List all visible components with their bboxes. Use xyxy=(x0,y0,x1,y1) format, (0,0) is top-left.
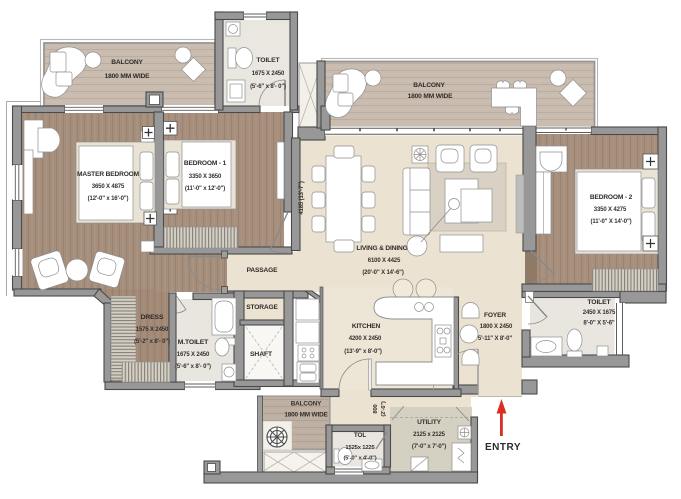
svg-text:1575 X 2450: 1575 X 2450 xyxy=(136,327,169,333)
svg-text:4200 X 2450: 4200 X 2450 xyxy=(349,336,382,342)
svg-text:BEDROOM - 2: BEDROOM - 2 xyxy=(590,194,633,201)
svg-text:(5'-6" x 8'- 0"): (5'-6" x 8'- 0") xyxy=(175,364,211,370)
svg-text:PASSAGE: PASSAGE xyxy=(247,267,278,274)
svg-text:(5'-6" x 8'- 0"): (5'-6" x 8'- 0") xyxy=(250,84,286,90)
svg-text:(13'-9" x 8'-0"): (13'-9" x 8'-0") xyxy=(344,349,382,355)
svg-text:DRESS: DRESS xyxy=(141,314,164,321)
svg-text:2125 x 2125: 2125 x 2125 xyxy=(413,432,446,438)
svg-text:1525x 1225: 1525x 1225 xyxy=(345,445,375,451)
svg-text:(11'-0" X 14'-0"): (11'-0" X 14'-0") xyxy=(590,219,631,225)
svg-text:1800 MM WIDE: 1800 MM WIDE xyxy=(105,73,150,80)
svg-text:SHAFT: SHAFT xyxy=(250,351,273,358)
svg-text:BALCONY: BALCONY xyxy=(111,59,143,66)
svg-text:(20'-0" X 14'-6"): (20'-0" X 14'-6") xyxy=(362,270,403,276)
svg-text:(12'-0" x 16'-0"): (12'-0" x 16'-0") xyxy=(88,196,129,202)
svg-text:3650 X 4875: 3650 X 4875 xyxy=(92,184,125,190)
svg-text:KITCHEN: KITCHEN xyxy=(352,323,381,330)
svg-text:(5'-2" x 8'- 0"): (5'-2" x 8'- 0") xyxy=(134,339,170,345)
svg-text:FOYER: FOYER xyxy=(484,312,506,319)
svg-text:STORAGE: STORAGE xyxy=(246,304,278,311)
svg-text:TOL: TOL xyxy=(354,432,366,439)
svg-text:BEDROOM - 1: BEDROOM - 1 xyxy=(184,160,227,167)
svg-text:(2'-6"): (2'-6") xyxy=(381,401,387,417)
svg-text:3350 X 3650: 3350 X 3650 xyxy=(189,174,222,180)
svg-text:800: 800 xyxy=(373,404,379,413)
svg-text:1800 MM WIDE: 1800 MM WIDE xyxy=(284,412,328,419)
svg-text:TOILET: TOILET xyxy=(587,299,611,306)
svg-text:(5'-0" x 4'-0"): (5'-0" x 4'-0") xyxy=(343,456,376,462)
svg-text:1800 X 2450: 1800 X 2450 xyxy=(480,324,513,330)
svg-text:1675 X 2450: 1675 X 2450 xyxy=(252,71,285,77)
svg-text:8'-0" X 5'-6": 8'-0" X 5'-6" xyxy=(583,321,615,327)
svg-text:UTILITY: UTILITY xyxy=(417,419,442,426)
svg-text:BALCONY: BALCONY xyxy=(413,82,445,89)
svg-text:BALCONY: BALCONY xyxy=(291,401,322,408)
svg-text:5'-11" X 8'-0": 5'-11" X 8'-0" xyxy=(478,336,512,342)
svg-text:TOILET: TOILET xyxy=(256,57,280,64)
svg-text:6100 X 4425: 6100 X 4425 xyxy=(368,258,401,264)
svg-text:M.TOILET: M.TOILET xyxy=(178,339,209,346)
svg-text:2450 X 1675: 2450 X 1675 xyxy=(583,310,616,316)
svg-text:(7'-0" x 7'-0"): (7'-0" x 7'-0") xyxy=(412,444,446,450)
svg-text:MASTER BEDROOM: MASTER BEDROOM xyxy=(77,171,140,178)
svg-text:LIVING & DINING: LIVING & DINING xyxy=(356,245,407,252)
svg-text:(11'-0" x 12'-0"): (11'-0" x 12'-0") xyxy=(185,186,225,192)
svg-text:3350 X 4275: 3350 X 4275 xyxy=(594,207,627,213)
svg-text:1800 MM WIDE: 1800 MM WIDE xyxy=(408,93,453,100)
svg-text:ENTRY: ENTRY xyxy=(485,442,521,453)
svg-text:1675 X 2450: 1675 X 2450 xyxy=(177,352,210,358)
svg-text:4185 (13'-7"): 4185 (13'-7") xyxy=(299,181,305,214)
